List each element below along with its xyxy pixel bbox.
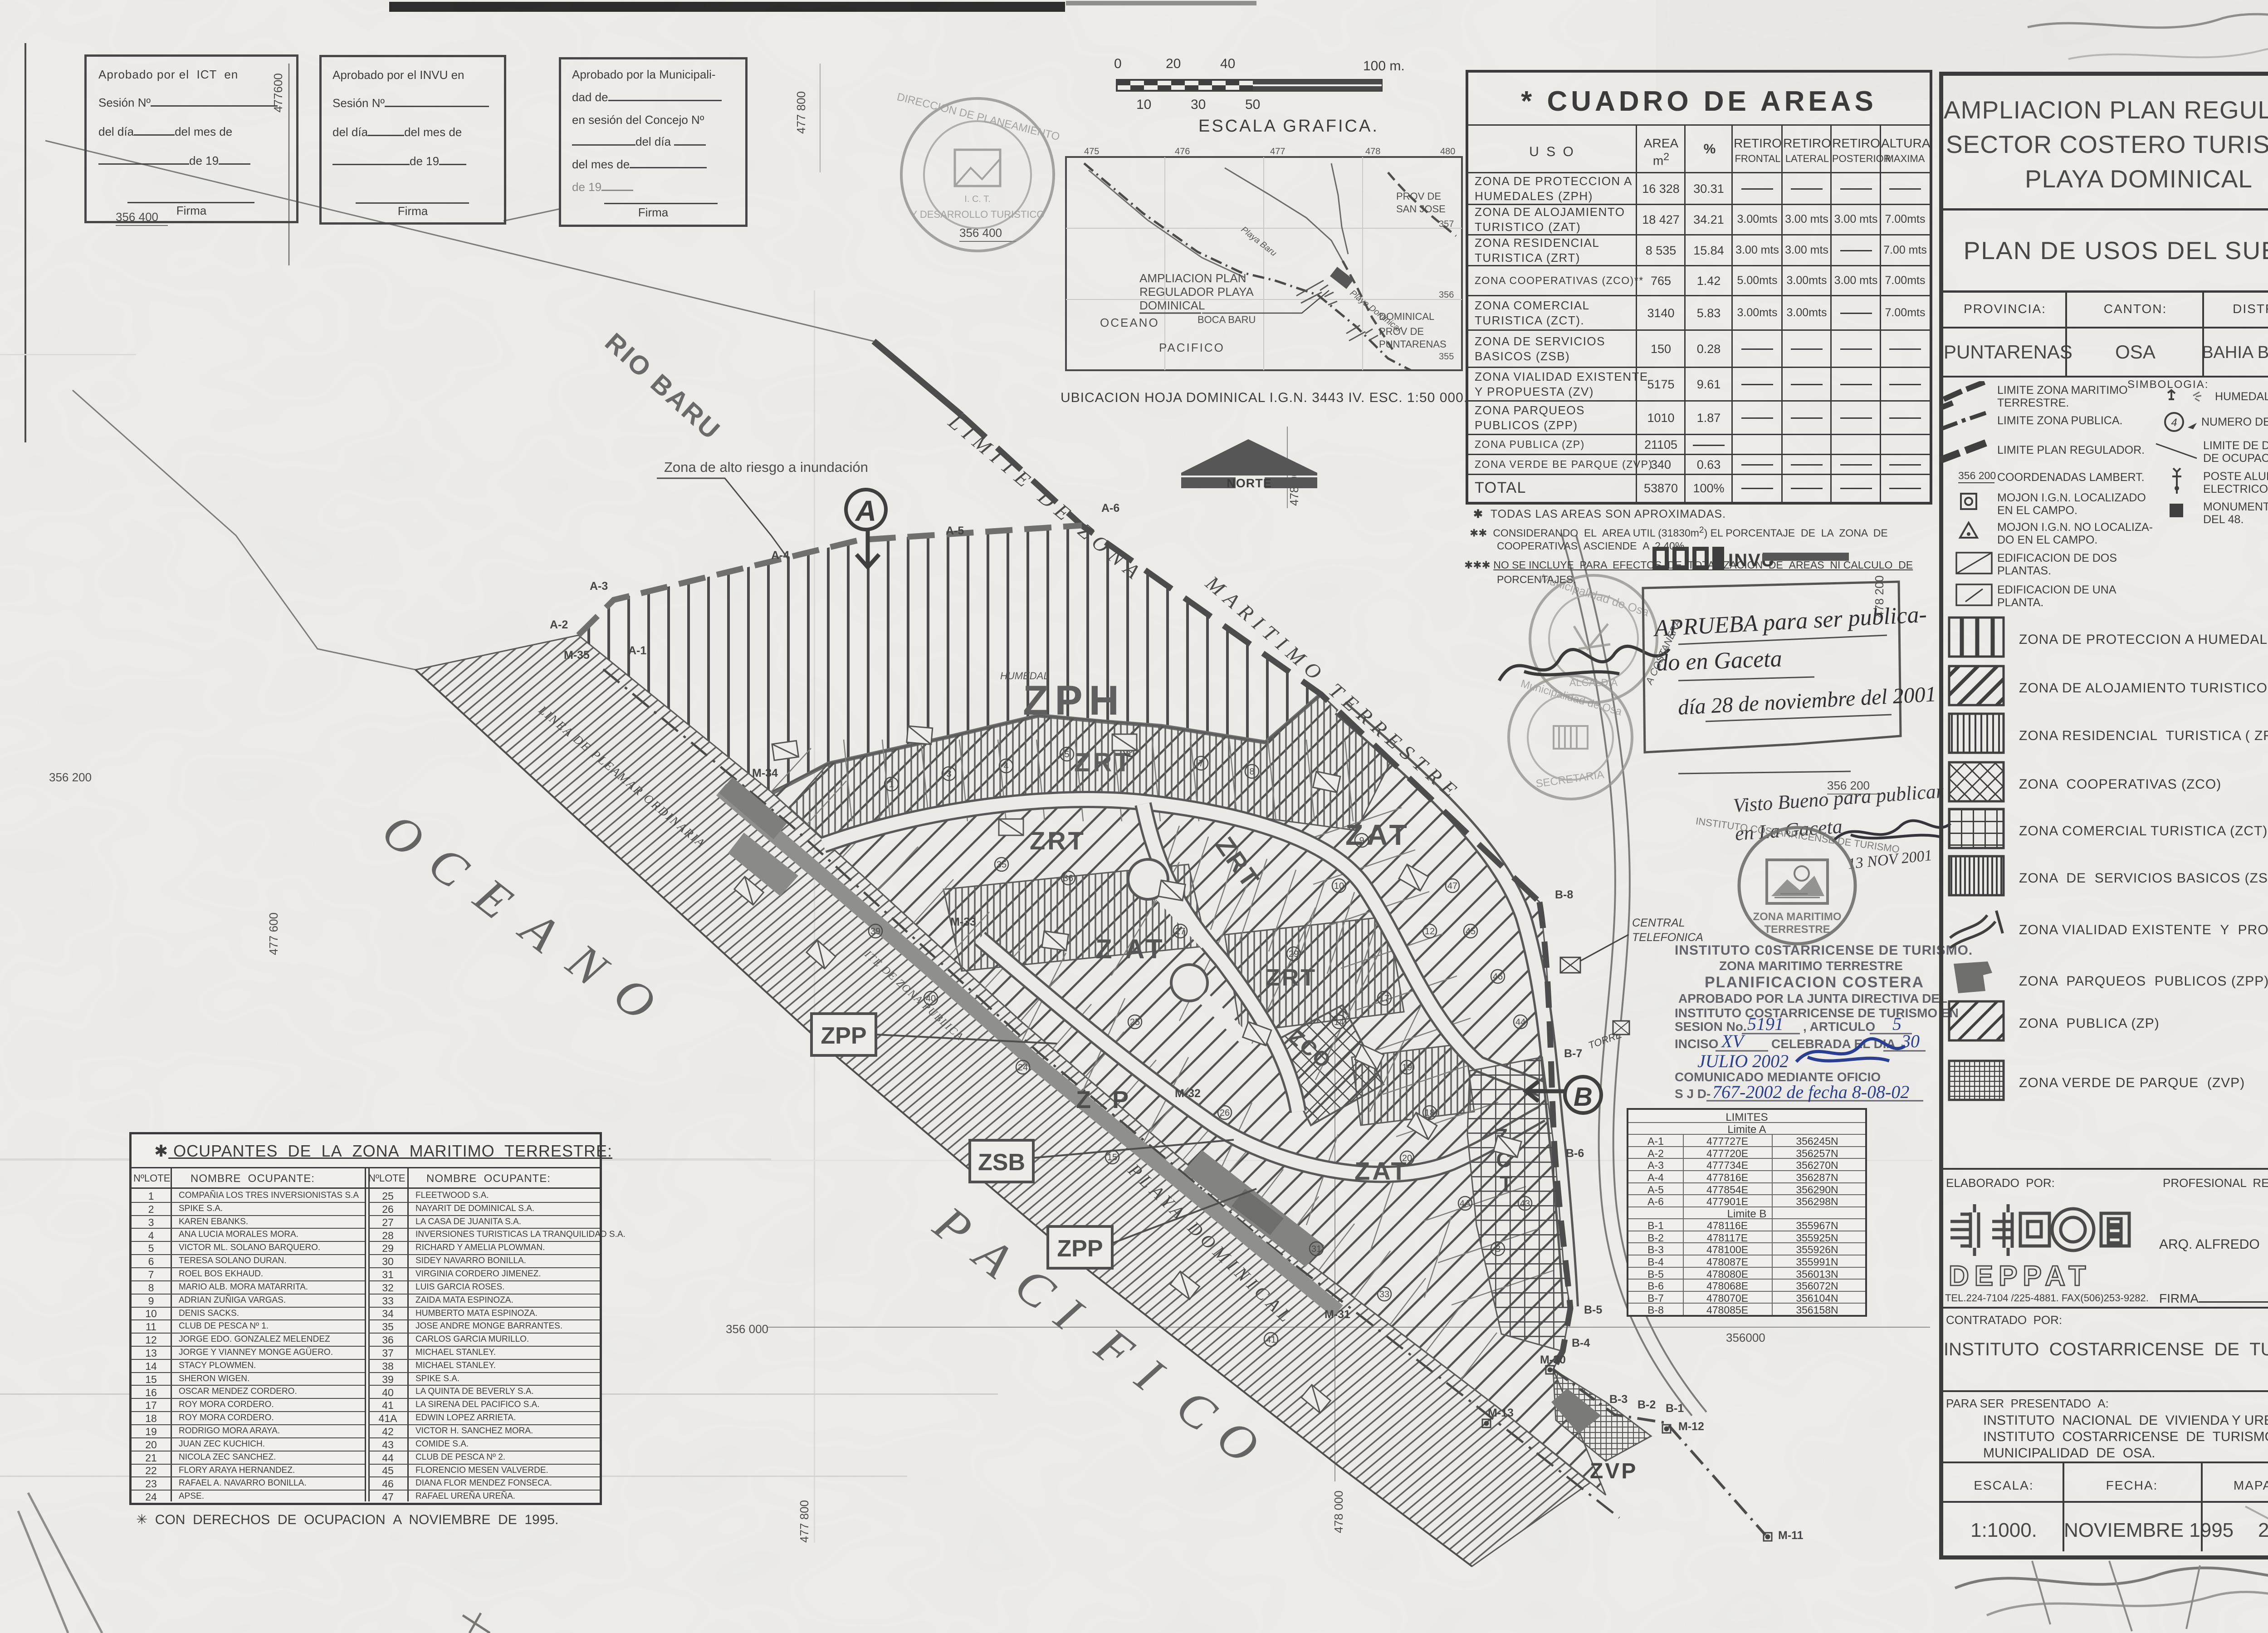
svg-text:MOJON I.G.N. NO LOCALIZA-: MOJON I.G.N. NO LOCALIZA- <box>1997 521 2153 534</box>
svg-text:Playa Baru: Playa Baru <box>1239 225 1279 258</box>
svg-text:Visto Bueno para publicar: Visto Bueno para publicar <box>1732 780 1945 817</box>
svg-text:MONUMENTO CAIDOS: MONUMENTO CAIDOS <box>2203 500 2268 513</box>
svg-text:HUMEDAL.: HUMEDAL. <box>2215 390 2268 403</box>
svg-text:TERRESTRE.: TERRESTRE. <box>1997 397 2069 409</box>
svg-text:ZONA DE PROTECCION A HUMEDALES: ZONA DE PROTECCION A HUMEDALES (ZPH) <box>2019 632 2268 647</box>
svg-text:30: 30 <box>1191 97 1206 112</box>
svg-text:0: 0 <box>1114 56 1122 71</box>
svg-text:355: 355 <box>1439 352 1454 362</box>
svg-text:475: 475 <box>1084 147 1099 157</box>
svg-text:480: 480 <box>1440 147 1455 157</box>
svg-text:INSTITUTO C0STARRICENSE DE: INSTITUTO C0STARRICENSE DE TURISMO. <box>1675 943 1973 958</box>
svg-text:ZONA MARITIMO: ZONA MARITIMO <box>1753 911 1841 923</box>
svg-text:, ARTICULO: , ARTICULO <box>1803 1020 1875 1034</box>
svg-text:S J D-: S J D- <box>1675 1087 1711 1101</box>
svg-text:ZONA PUBLICA (ZP): ZONA PUBLICA (ZP) <box>2019 1016 2160 1031</box>
svg-text:PUNTARENAS: PUNTARENAS <box>1379 338 1447 350</box>
svg-text:UBICACION HOJA DOMINICAL I: UBICACION HOJA DOMINICAL I.G.N. 3443 IV.… <box>1061 390 1468 405</box>
svg-text:ZONA DE SERVICIOS BASICOS (Z: ZONA DE SERVICIOS BASICOS (ZSB) <box>2019 871 2268 886</box>
svg-text:COORDENADAS LAMBERT.: COORDENADAS LAMBERT. <box>1997 471 2145 484</box>
svg-text:PLANTA.: PLANTA. <box>1997 596 2043 609</box>
svg-text:EDIFICACION DE DOS: EDIFICACION DE DOS <box>1997 552 2117 564</box>
svg-text:50: 50 <box>1245 97 1260 112</box>
svg-text:DOMINICAL: DOMINICAL <box>1139 299 1205 312</box>
svg-text:PACIFICO: PACIFICO <box>1159 341 1225 354</box>
svg-text:ZONA PARQUEOS PUBLICOS (ZPP): ZONA PARQUEOS PUBLICOS (ZPP) <box>2019 974 2268 989</box>
svg-text:JULIO 2002: JULIO 2002 <box>1697 1051 1789 1071</box>
svg-text:10: 10 <box>1136 97 1151 112</box>
svg-text:476: 476 <box>1175 147 1190 157</box>
svg-text:INSTITUTO COSTARRICENSE DE: INSTITUTO COSTARRICENSE DE TURISMO EN <box>1675 1006 1959 1020</box>
svg-text:APROBADO POR LA JUNTA DIRE: APROBADO POR LA JUNTA DIRECTIVA DEL <box>1678 991 1947 1005</box>
svg-text:ZONA COOPERATIVAS (ZCO): ZONA COOPERATIVAS (ZCO) <box>2019 777 2221 792</box>
svg-text:OCEANO: OCEANO <box>1100 316 1159 329</box>
svg-text:BOCA BARU: BOCA BARU <box>1198 314 1256 325</box>
svg-text:do en Gaceta: do en Gaceta <box>1656 646 1782 676</box>
svg-text:TERRESTRE: TERRESTRE <box>1764 923 1830 936</box>
svg-text:ZONA MARITIMO TERRESTRE: ZONA MARITIMO TERRESTRE <box>1719 959 1903 973</box>
svg-text:INCISO: INCISO <box>1675 1037 1718 1051</box>
svg-text:478: 478 <box>1365 147 1380 157</box>
svg-text:40: 40 <box>1220 56 1235 71</box>
svg-text:LIMITE DE DERECHO: LIMITE DE DERECHO <box>2203 439 2268 452</box>
svg-text:DE OCUPACION.: DE OCUPACION. <box>2203 452 2268 465</box>
svg-text:PLANTAS.: PLANTAS. <box>1997 564 2051 577</box>
svg-text:100 m.: 100 m. <box>1363 59 1405 74</box>
svg-text:DO EN EL CAMPO.: DO EN EL CAMPO. <box>1997 534 2097 546</box>
svg-text:5191: 5191 <box>1747 1014 1784 1034</box>
svg-text:REGULADOR PLAYA: REGULADOR PLAYA <box>1139 285 1254 299</box>
svg-text:PLANIFICACION COSTERA: PLANIFICACION COSTERA <box>1705 974 1924 991</box>
svg-text:ESCALA GRAFICA.: ESCALA GRAFICA. <box>1198 117 1379 136</box>
svg-text:MOJON I.G.N. LOCALIZADO: MOJON I.G.N. LOCALIZADO <box>1997 491 2146 504</box>
svg-text:día 28 de noviembre del 200: día 28 de noviembre del 2001 <box>1677 682 1937 720</box>
svg-text:EN EL CAMPO.: EN EL CAMPO. <box>1997 504 2077 517</box>
svg-text:5: 5 <box>1892 1014 1901 1034</box>
svg-text:LIMITE ZONA MARITIMO: LIMITE ZONA MARITIMO <box>1997 384 2128 397</box>
svg-text:Y DESARROLLO TURISTICO: Y DESARROLLO TURISTICO <box>910 209 1044 220</box>
svg-text:ZONA COMERCIAL TURISTICA (ZCT): ZONA COMERCIAL TURISTICA (ZCT) <box>2019 824 2268 839</box>
svg-text:LIMITE PLAN REGULADOR.: LIMITE PLAN REGULADOR. <box>1997 444 2145 456</box>
svg-text:SAN JOSE: SAN JOSE <box>1396 203 1446 215</box>
svg-text:356 200: 356 200 <box>1958 470 1996 481</box>
svg-text:NUMERO DE LOTE.: NUMERO DE LOTE. <box>2201 416 2268 428</box>
svg-text:DEL 48.: DEL 48. <box>2203 513 2244 526</box>
svg-text:ALCALDIA: ALCALDIA <box>1569 677 1618 688</box>
svg-text:ZONA VERDE DE PARQUE (ZVP): ZONA VERDE DE PARQUE (ZVP) <box>2019 1075 2245 1090</box>
svg-text:ZONA RESIDENCIAL TURISTICA (: ZONA RESIDENCIAL TURISTICA ( ZRT) <box>2019 728 2268 743</box>
svg-text:DEPPAT: DEPPAT <box>1949 1260 2091 1292</box>
svg-text:PROV DE: PROV DE <box>1396 191 1441 202</box>
svg-text:POSTE ALUMBRADO: POSTE ALUMBRADO <box>2203 470 2268 483</box>
svg-text:XV: XV <box>1721 1031 1745 1051</box>
svg-text:767-2002 de fecha 8-08-02: 767-2002 de fecha 8-08-02 <box>1712 1082 1909 1102</box>
svg-text:356: 356 <box>1439 290 1454 300</box>
svg-text:ZONA DE ALOJAMIENTO TURISTICO: ZONA DE ALOJAMIENTO TURISTICO ( ZAT). <box>2019 681 2268 696</box>
svg-text:477: 477 <box>1270 147 1285 157</box>
svg-text:ZONA VIALIDAD EXISTENTE Y PR: ZONA VIALIDAD EXISTENTE Y PROPUESTA (ZV) <box>2019 922 2268 937</box>
svg-text:4: 4 <box>2171 417 2177 429</box>
svg-text:EDIFICACION DE UNA: EDIFICACION DE UNA <box>1997 584 2116 596</box>
svg-text:LIMITE ZONA PUBLICA.: LIMITE ZONA PUBLICA. <box>1997 414 2122 427</box>
svg-text:ELECTRICO.: ELECTRICO. <box>2203 483 2268 495</box>
svg-text:AMPLIACION PLAN: AMPLIACION PLAN <box>1139 271 1246 285</box>
svg-text:I. C. T.: I. C. T. <box>964 194 990 204</box>
svg-text:20: 20 <box>1166 56 1181 71</box>
